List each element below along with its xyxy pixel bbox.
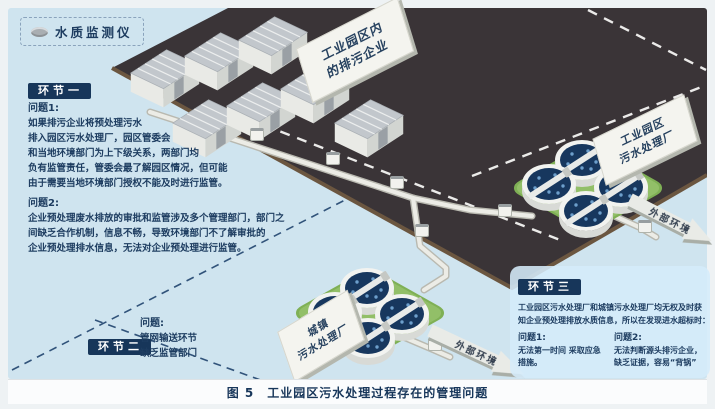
water-monitor-device: [498, 204, 512, 217]
figure-caption: 图 5 工业园区污水处理过程存在的管理问题: [0, 384, 715, 401]
problem-line: 缺乏监管部门: [140, 346, 197, 361]
water-monitor-device: [250, 128, 264, 141]
problem-line: 和当地环境部门为上下级关系，两部门均: [28, 146, 228, 161]
treatment-tank: [559, 191, 613, 238]
water-monitor-device: [638, 220, 652, 233]
stage3-intro: 工业园区污水处理厂和城镇污水处理厂均无权及时获 知企业预处理排放水质信息，所以在…: [518, 302, 710, 327]
infographic: 水质监测仪 工业园区内 的排污企业 工业园区 污水处理厂 城镇 污水处理厂 外部…: [0, 0, 715, 409]
stage1-problem2: 问题2: 企业预处理废水排放的审批和监管涉及多个管理部门，部门之 间缺乏合作机制…: [28, 196, 285, 256]
water-monitor-device: [390, 176, 404, 189]
problem-line: 由于需要当地环境部门授权不能及时进行监管。: [28, 176, 228, 191]
water-monitor-device: [415, 224, 429, 237]
stage1-badge: 环节一: [28, 83, 91, 99]
legend-water-quality-monitor: 水质监测仪: [20, 17, 144, 46]
water-monitor-device: [326, 152, 340, 165]
problem-line: 负有监管责任，管委会最了解园区情况，但可能: [28, 161, 228, 176]
problem-line: 措施。: [518, 357, 601, 370]
problem-line: 缺乏证据，容易“背锅”: [614, 357, 702, 370]
problem-line: 间缺乏合作机制，信息不畅，导致环境部门不了解审批的: [28, 226, 285, 241]
problem-line: 企业预处理废水排放的审批和监管涉及多个管理部门，部门之: [28, 211, 285, 226]
problem-line: 无法判断源头排污企业，: [614, 345, 702, 358]
water-monitor-icon: [31, 27, 48, 37]
problem-line: 无法第一时间 采取应急: [518, 345, 601, 358]
problem-title: 问题2:: [28, 196, 285, 211]
intro-line: 知企业预处理排放水质信息，所以在发现进水超标时：: [518, 315, 710, 328]
problem-title: 问题:: [140, 316, 197, 331]
legend-label: 水质监测仪: [55, 22, 133, 41]
problem-title: 问题1:: [28, 101, 228, 116]
stage3-badge: 环节三: [518, 279, 581, 295]
problem-line: 排入园区污水处理厂，园区管委会: [28, 131, 228, 146]
problem-line: 企业预处理排水信息，无法对企业预处理进行监管。: [28, 241, 285, 256]
problem-title: 问题2:: [614, 332, 702, 345]
problem-line: 如果排污企业将预处理污水: [28, 116, 228, 131]
problem-title: 问题1:: [518, 332, 601, 345]
problem-line: 管网输送环节: [140, 331, 197, 346]
stage3-problem2: 问题2: 无法判断源头排污企业， 缺乏证据，容易“背锅”: [614, 332, 702, 370]
stage3-panel: 环节三 工业园区污水处理厂和城镇污水处理厂均无权及时获 知企业预处理排放水质信息…: [510, 266, 710, 378]
stage2-problem: 问题: 管网输送环节 缺乏监管部门: [140, 316, 197, 361]
intro-line: 工业园区污水处理厂和城镇污水处理厂均无权及时获: [518, 302, 710, 315]
stage1-problem1: 问题1: 如果排污企业将预处理污水 排入园区污水处理厂，园区管委会 和当地环境部…: [28, 101, 228, 191]
stage3-problem1: 问题1: 无法第一时间 采取应急 措施。: [518, 332, 601, 370]
